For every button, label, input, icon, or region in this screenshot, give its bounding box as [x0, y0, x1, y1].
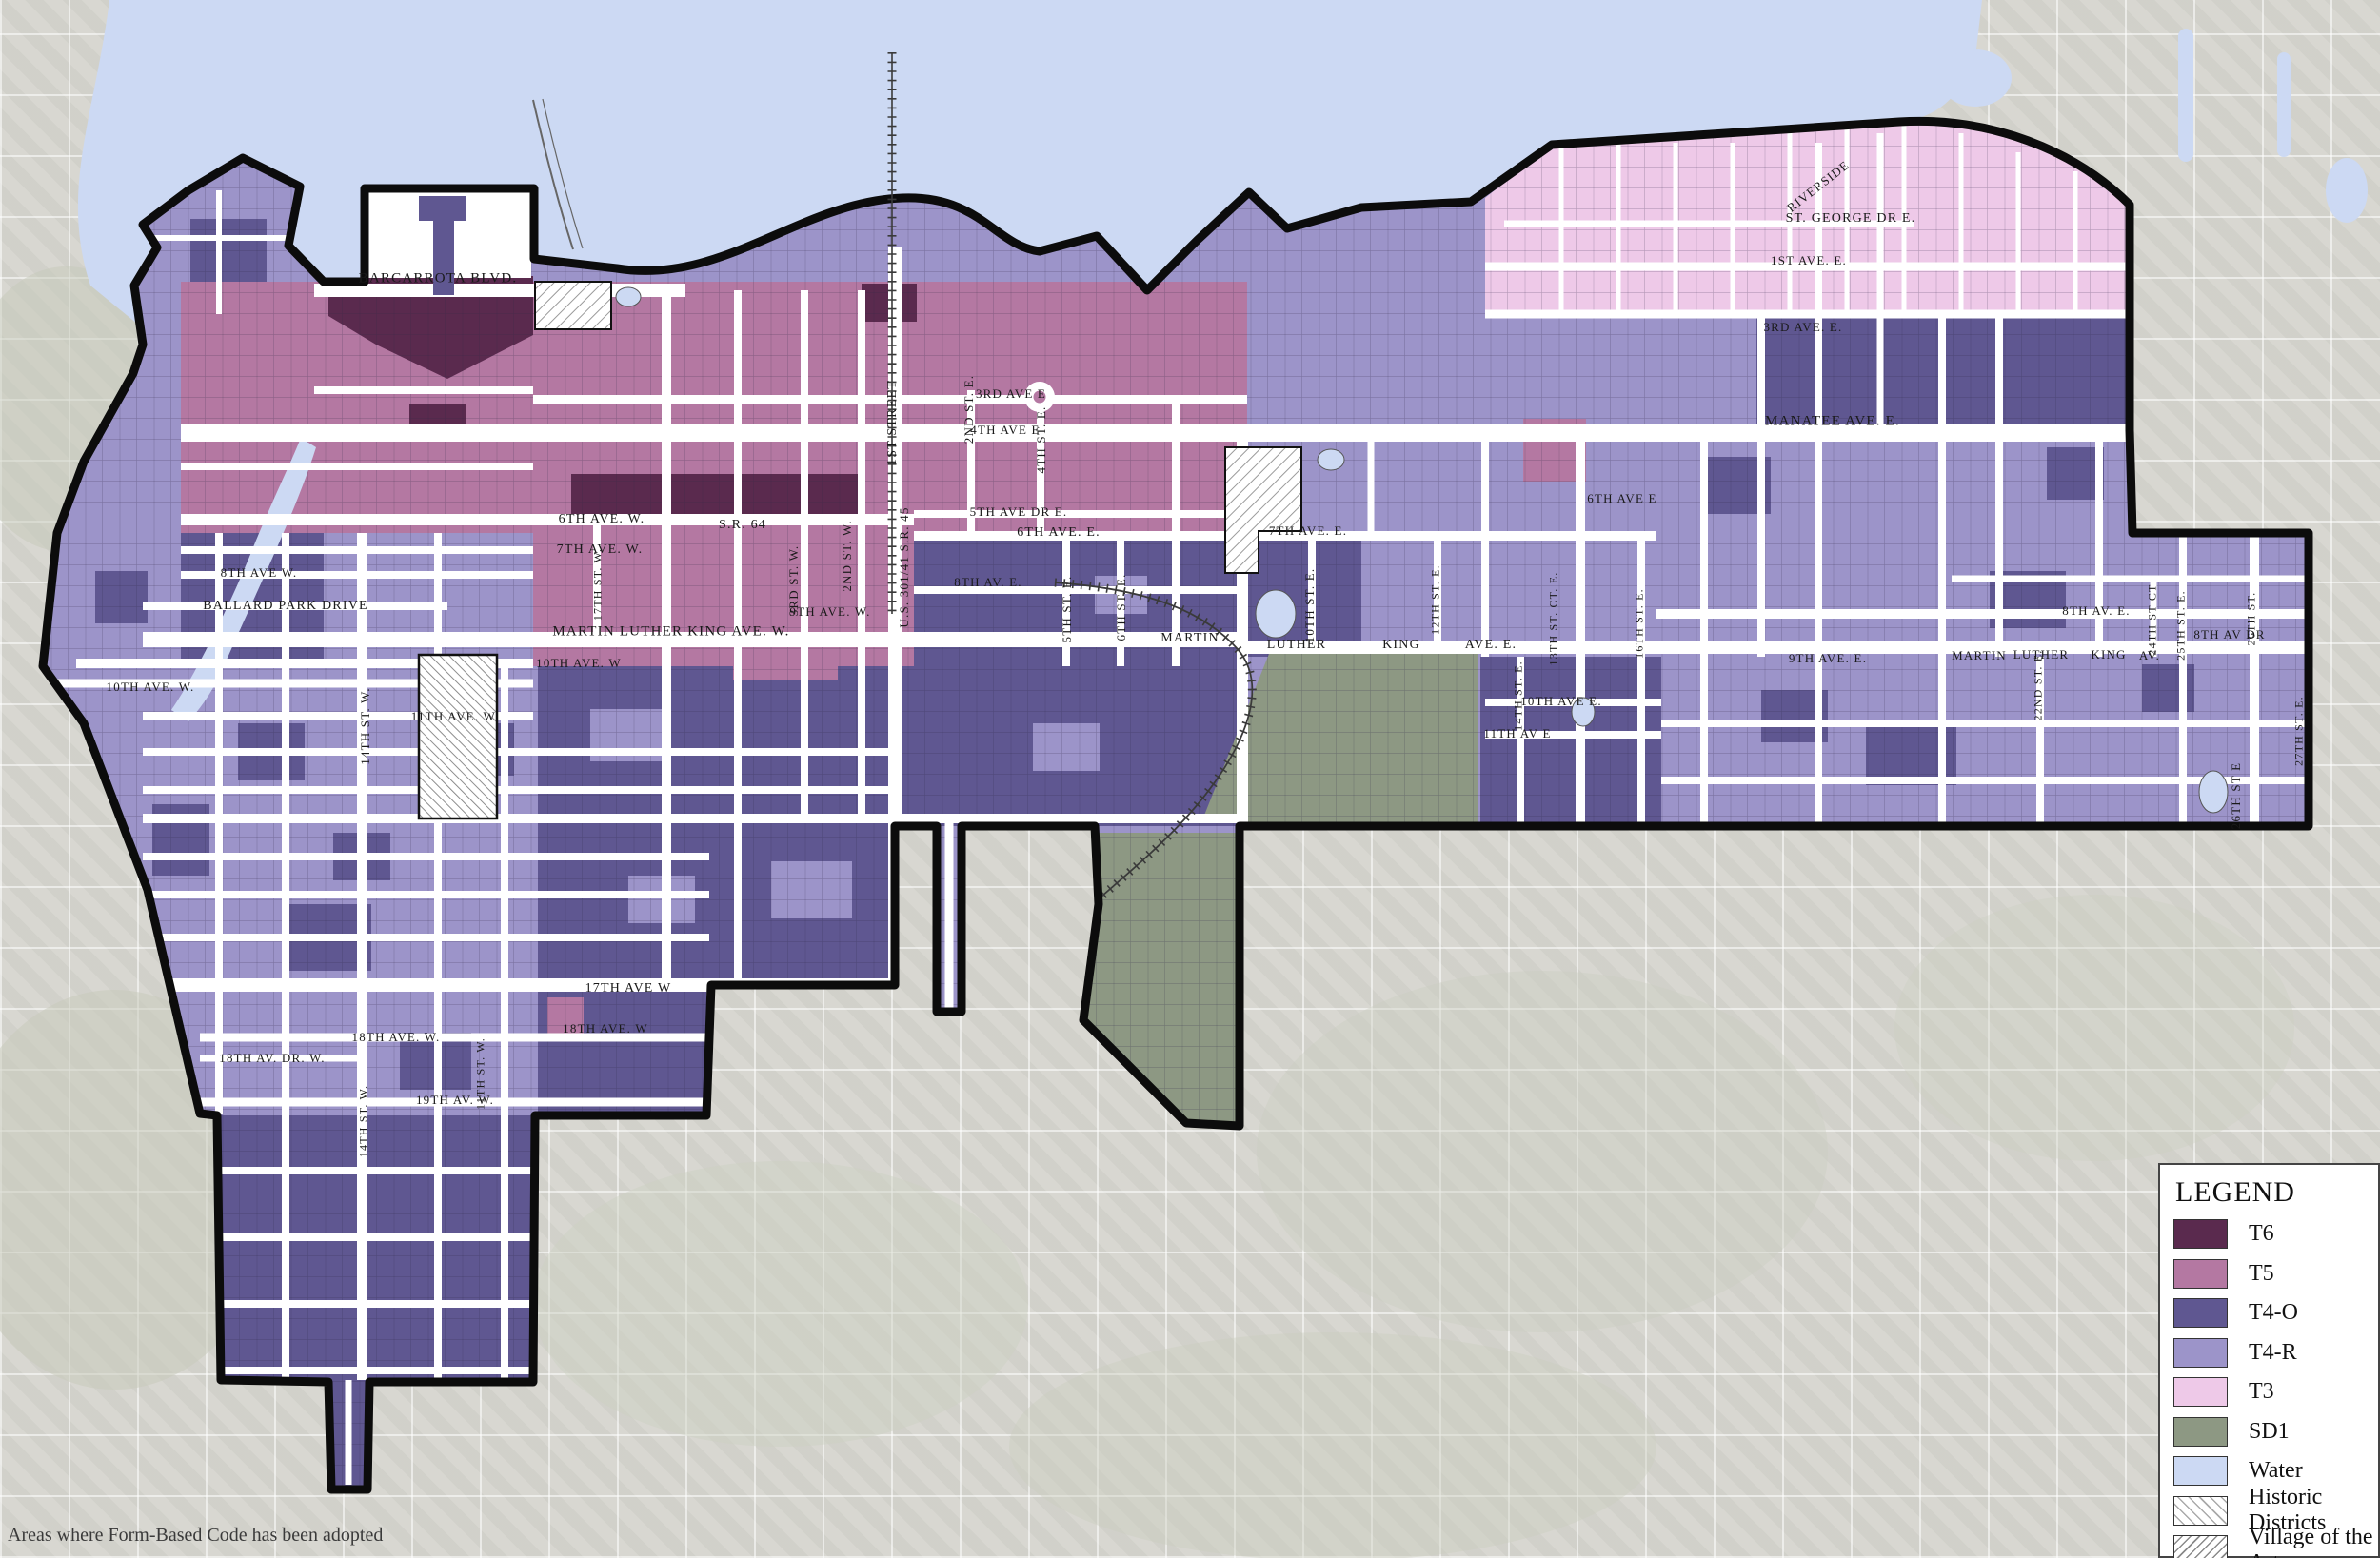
legend-label: SD1 [2249, 1419, 2290, 1445]
legend-label: Village of the Arts [2249, 1525, 2378, 1558]
legend-items: T6T5T4-OT4-RT3SD1WaterHistoric Districts… [2173, 1218, 2378, 1558]
legend-swatch [2173, 1259, 2228, 1289]
legend-swatch [2173, 1496, 2228, 1526]
roundabout [1024, 382, 1055, 412]
legend-item-t5: T5 [2173, 1258, 2378, 1290]
legend-item-village-of-the-arts: Village of the Arts [2173, 1534, 2378, 1558]
legend-label: Water [2249, 1458, 2303, 1484]
legend-item-historic-districts: Historic Districts [2173, 1495, 2378, 1527]
legend-item-sd1: SD1 [2173, 1416, 2378, 1448]
zoning-map-canvas: BARCARROTA BLVD.MANATEE AVE. E.MARTIN LU… [0, 0, 2380, 1558]
suburb-canal [2277, 52, 2291, 157]
legend-label: T3 [2249, 1379, 2274, 1405]
legend-item-water: Water [2173, 1455, 2378, 1487]
suburb-pond [1939, 49, 2012, 107]
legend-swatch [2173, 1535, 2228, 1558]
village-of-the-arts-overlay [419, 655, 497, 818]
legend-label: T4-R [2249, 1340, 2297, 1366]
legend-swatch [2173, 1456, 2228, 1486]
legend-swatch [2173, 1377, 2228, 1407]
legend-label: T4-O [2249, 1300, 2298, 1326]
legend-swatch [2173, 1417, 2228, 1447]
legend-label: T6 [2249, 1221, 2274, 1247]
legend: LEGEND T6T5T4-OT4-RT3SD1WaterHistoric Di… [2158, 1163, 2380, 1558]
suburb-canal [2178, 29, 2193, 162]
legend-item-t4-r: T4-R [2173, 1337, 2378, 1369]
legend-title: LEGEND [2175, 1176, 2378, 1209]
legend-swatch [2173, 1298, 2228, 1328]
legend-item-t6: T6 [2173, 1218, 2378, 1250]
legend-swatch [2173, 1219, 2228, 1249]
suburb-pond [2326, 158, 2368, 223]
legend-item-t3: T3 [2173, 1376, 2378, 1408]
transect-zoning-map [0, 0, 2380, 1558]
legend-swatch [2173, 1338, 2228, 1368]
legend-label: T5 [2249, 1261, 2274, 1287]
adopted-areas-note: Areas where Form-Based Code has been ado… [8, 1525, 383, 1547]
legend-item-t4-o: T4-O [2173, 1297, 2378, 1329]
pier-stem [433, 196, 454, 295]
